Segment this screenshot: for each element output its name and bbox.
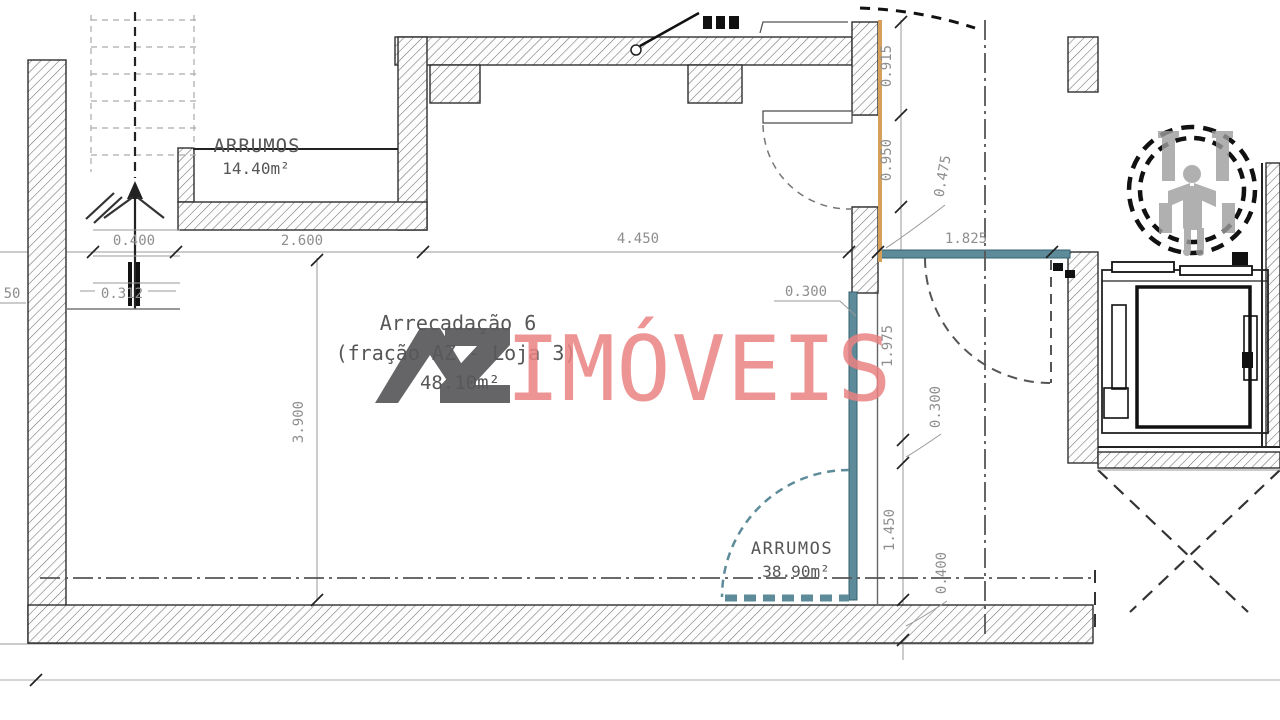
door-leaf-main (763, 111, 852, 123)
dim-0915-label: 0.915 (879, 45, 895, 87)
door-pivot-top (631, 45, 641, 55)
dim-4450-label: 4.450 (617, 231, 659, 247)
door-arc-right (925, 258, 1050, 383)
dim-0950-label: 0.950 (879, 139, 895, 181)
watermark: IMÓVEIS (375, 315, 892, 422)
elevator-cabin (1137, 287, 1250, 427)
dim-3900-label: 3.900 (291, 401, 307, 443)
stair-break-marks (86, 193, 164, 223)
dim-0300b-label: 0.300 (928, 386, 944, 428)
dim-left-partial-label: 50 (4, 286, 21, 302)
room-arrumos-top-area: 14.40m² (222, 159, 289, 178)
void-markers (1095, 470, 1280, 633)
elevator-door-panel (1112, 262, 1174, 272)
stair-direction-arrow (127, 181, 143, 199)
wheelchair-symbol (1129, 127, 1255, 256)
dim-0400b-label: 0.400 (934, 552, 950, 594)
dim-1450-label: 1.450 (882, 509, 898, 551)
teal-beam (878, 250, 1070, 258)
elevator-rail-left (1112, 305, 1126, 389)
watermark-imoveis-text: IMÓVEIS (506, 315, 892, 422)
room-arrumos-top-name: ARRUMOS (213, 135, 300, 157)
room-arrumos-bottom-name: ARRUMOS (751, 539, 833, 559)
door-arc-main (763, 125, 851, 209)
watermark-az-logo (375, 328, 510, 403)
elevator-shaft (1102, 270, 1268, 433)
dim-0300a-label: 0.300 (785, 284, 827, 300)
elevator-door-panel (1180, 266, 1252, 275)
dim-0475-label: 0.475 (932, 154, 955, 198)
dim-1825-label: 1.825 (945, 231, 987, 247)
room-arrumos-bottom-area: 38.90m² (762, 562, 829, 581)
dim-2600-label: 2.600 (281, 233, 323, 249)
dim-0312-label: 0.312 (101, 286, 143, 302)
floorplan-canvas: 0.400 2.600 4.450 1.825 0.312 50 3.900 0… (0, 0, 1280, 720)
dim-0400-label: 0.400 (113, 233, 155, 249)
